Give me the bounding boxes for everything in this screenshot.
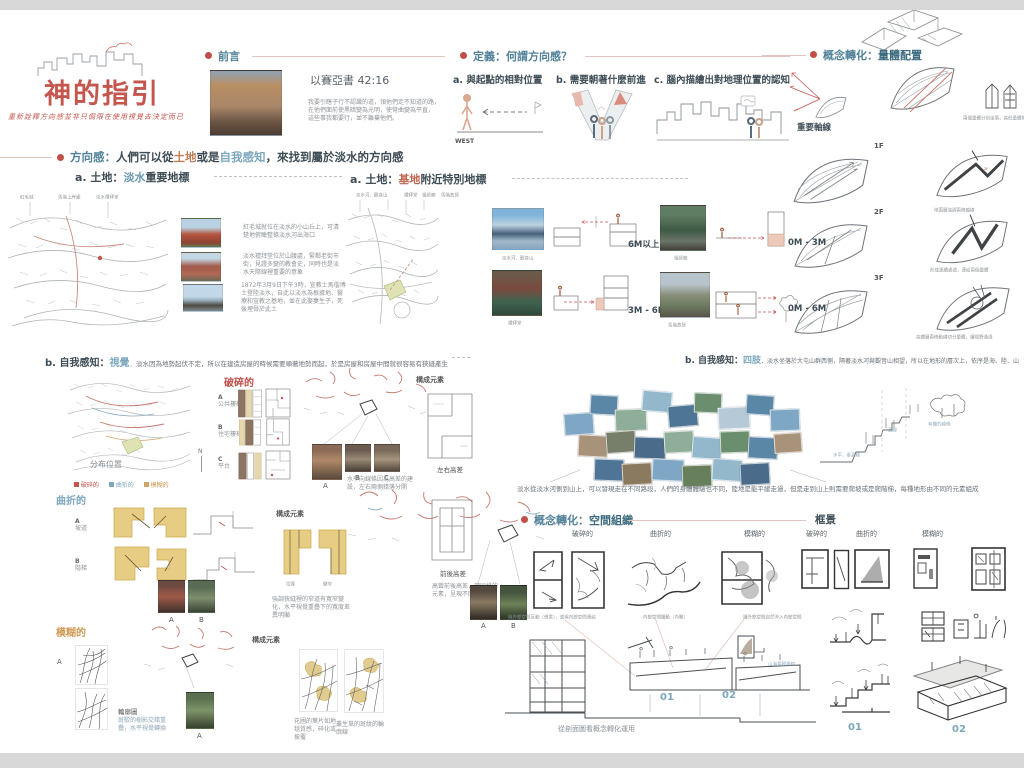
building-section-drawing bbox=[500, 628, 820, 724]
photo-guanyin-mountain bbox=[492, 208, 544, 250]
volume-bullet bbox=[810, 51, 817, 58]
distribution-caption: 分布位置 bbox=[90, 459, 122, 470]
framing-sketch-3 bbox=[853, 548, 891, 590]
distance-label-1: 6M以上 bbox=[628, 238, 659, 250]
blurred-element-1 bbox=[299, 649, 338, 712]
map-label-mackay-landing: 馬偕上岸處 bbox=[58, 193, 81, 200]
land-a-caption-3: 1872年3月9日下午3時，宣教士馬偕博士登陸淡水，自此以淡水為根據地、醫療和宣… bbox=[241, 282, 347, 314]
fragmented-elements-title: 構成元素 bbox=[416, 375, 444, 385]
axis-diagram bbox=[788, 65, 848, 120]
fragmented-title: 破碎的 bbox=[224, 374, 254, 389]
fragmented-plan-b bbox=[265, 418, 291, 446]
verse-line: 在他們面前使黑暗變為光明，使彎曲變為平直， bbox=[308, 107, 458, 115]
fragmented-plan-c bbox=[265, 450, 291, 480]
legend-blurred: 模糊的 bbox=[144, 482, 169, 489]
winding-element-caption-1: 拉寬 bbox=[286, 580, 295, 587]
space-title: 空間組織 bbox=[589, 514, 633, 527]
legend-fragmented: 破碎的 bbox=[74, 482, 99, 489]
photo-winding-b bbox=[188, 580, 215, 613]
winding-plan-a bbox=[191, 508, 255, 537]
framing-misc-sketch bbox=[952, 610, 1010, 648]
framing-title: 框景 bbox=[815, 512, 836, 527]
definition-illustration-b bbox=[558, 84, 646, 142]
space-cat-blurred: 模糊的 bbox=[744, 529, 765, 539]
blurred-note-1: 花圃的葉片如地毯質感，碎化或披覆 bbox=[294, 718, 338, 742]
map-tamsui bbox=[6, 200, 170, 334]
poster-subtitle: 重新詮釋方向感並非只侷限在使用視覺去決定而已 bbox=[8, 112, 184, 122]
section-marker-01: 01 bbox=[660, 692, 674, 703]
direction-rule bbox=[0, 157, 52, 158]
framing-sketch-2 bbox=[833, 549, 850, 590]
fragmented-strip-b bbox=[237, 419, 263, 446]
foreword-title: 前言 bbox=[218, 48, 240, 64]
direction-self-highlight: 自我感知 bbox=[220, 150, 266, 164]
blurred-pattern-caption: 輪廓圖 bbox=[118, 706, 138, 716]
map-label-mackay-house: 馬偕故居 bbox=[441, 191, 459, 198]
definition-illustration-a bbox=[455, 90, 545, 136]
winding-element-caption-2: 變窄 bbox=[323, 580, 332, 587]
photo-blurred-a bbox=[186, 692, 214, 729]
floor-label-2f: 2F bbox=[874, 208, 884, 216]
photo-fragmented-b bbox=[345, 444, 371, 472]
framing-cat-fragmented: 破碎的 bbox=[806, 529, 827, 539]
map-label-temple: 祖師廟 bbox=[422, 191, 436, 198]
framing-terrain-sketch-1 bbox=[828, 602, 888, 650]
space-cat-fragmented: 破碎的 bbox=[572, 529, 593, 539]
volume-rule bbox=[762, 55, 806, 56]
bottom-margin bbox=[0, 753, 1024, 768]
diagram-lr-caption: 左右高差 bbox=[437, 464, 463, 474]
poster-page: { "title_block": { "title": "神的指引", "sub… bbox=[0, 0, 1024, 768]
photo-winding-a bbox=[158, 580, 185, 613]
collage-leader-lines bbox=[540, 470, 830, 484]
fragmented-sketch-map bbox=[296, 362, 432, 446]
photo-fort-san-domingo bbox=[181, 218, 221, 248]
terrain-label-3: 有機的線條 bbox=[928, 420, 951, 427]
axis-caption: 重要軸線 bbox=[797, 121, 831, 133]
fragmented-strip-c bbox=[237, 452, 263, 480]
section-detail-caption: 山海景觀視線 bbox=[768, 660, 795, 667]
definition-rule bbox=[585, 56, 790, 57]
winding-plan-b bbox=[191, 546, 257, 583]
framing-sketch-1 bbox=[800, 548, 830, 590]
distance-diagram-2 bbox=[552, 274, 630, 318]
north-arrow-line bbox=[201, 456, 202, 472]
land-a-caption-2: 淡水禮拜堂位於山腰處，緊鄰老街市街，見證多變的教會史，同時也是淡水天際線裡重要的… bbox=[243, 253, 343, 277]
legend-winding: 曲折的 bbox=[109, 482, 134, 489]
terrain-label-2: 直線 bbox=[888, 426, 897, 433]
plan-fan-2f-right bbox=[933, 210, 1011, 270]
winding-note: 強調狹縫裡的窄道有寬窄變化，水平視覺重疊下的寬度差異明顯 bbox=[272, 596, 352, 620]
distance-diagram-4 bbox=[714, 288, 798, 326]
winding-photo2-tag-a: A bbox=[481, 622, 486, 630]
space-title-prefix: 概念轉化： bbox=[534, 514, 589, 527]
winding-diagram-b bbox=[113, 545, 188, 582]
direction-label: 方向感： bbox=[70, 150, 116, 164]
self-visual-dashes bbox=[452, 357, 470, 358]
photo-mackay-house bbox=[660, 272, 710, 318]
definition-title: 定義：何謂方向感？ bbox=[473, 48, 572, 64]
verse-text: 我要引瞎子行不認識的道，領他們走不知道的路， 在他們面前使黑暗變為光明，使彎曲變… bbox=[308, 99, 458, 123]
blurred-element-2 bbox=[344, 649, 384, 713]
blurred-pattern-1 bbox=[75, 645, 108, 685]
volume-towers-sketch bbox=[982, 80, 1018, 112]
floor-label-3f: 3F bbox=[874, 274, 884, 282]
land-b-heading: a. 土地：基地附近特別地標 bbox=[350, 171, 486, 187]
framing-cat-blurred: 模糊的 bbox=[922, 529, 943, 539]
fragmented-row-c-tag: C平台 bbox=[218, 456, 230, 471]
photo-tag-a: A bbox=[323, 482, 328, 490]
framing-sketch-4 bbox=[912, 547, 939, 590]
photo-fragmented-c bbox=[374, 444, 400, 472]
volume-title-prefix: 概念轉化： bbox=[823, 49, 878, 62]
plan-fan-1f-left bbox=[790, 148, 872, 210]
photo-caption-mackay-house: 馬偕故居 bbox=[668, 321, 686, 328]
map-label-chapel: 禮拜堂 bbox=[404, 191, 418, 198]
photo-chapel-street bbox=[492, 270, 542, 316]
floor-label-1f: 1F bbox=[874, 142, 884, 150]
distance-diagram-3 bbox=[714, 208, 786, 250]
space-bullet bbox=[521, 516, 528, 523]
fragmented-strip-a bbox=[237, 389, 263, 418]
section-caption: 從剖面圖看概念轉化運用 bbox=[558, 724, 635, 734]
map-label-fort: 紅毛城 bbox=[20, 193, 34, 200]
foreword-rule bbox=[252, 56, 445, 57]
north-arrow: N bbox=[198, 448, 203, 455]
limbs-caption: 淡水從淡水河側到山上，可以發現走在不同路段，人們的身體體驗也不同，陸地是能平緩走… bbox=[517, 483, 979, 493]
winding-diagram-a bbox=[112, 506, 188, 539]
photo-fragmented-a bbox=[312, 444, 342, 480]
photo-tamsui-church bbox=[181, 252, 221, 282]
blurred-photo-tag: A bbox=[197, 732, 202, 740]
photo-caption-chapel: 禮拜堂 bbox=[508, 319, 522, 326]
land-b-dashes bbox=[512, 178, 688, 179]
framing-marker-02: 02 bbox=[952, 724, 966, 735]
definition-illustration-c bbox=[655, 84, 791, 142]
direction-heading: 方向感：人們可以從土地或是自我感知，來找到屬於淡水的方向感 bbox=[70, 149, 404, 165]
land-a-caption-1: 紅毛城就位在淡水的小山丘上，可清楚地俯瞰整條淡水河出海口 bbox=[243, 224, 343, 240]
blurred-note-2: 叢生草的斑紋的輪廓線 bbox=[336, 721, 386, 737]
floor-caption-3f: 高樓層兩條動線切分量體，讓視野通透 bbox=[916, 333, 993, 340]
framing-terrain-sketch-2 bbox=[828, 660, 894, 718]
space-rule bbox=[628, 520, 806, 521]
self-limbs-heading: b. 自我感知：四肢．淡水坐落於大屯山群西側，隔著淡水河與觀音山相望，所以在地形… bbox=[685, 348, 1019, 367]
photo-caption-temple: 祖師廟 bbox=[674, 254, 688, 261]
definition-item-a: a. 與起點的相對位置 bbox=[453, 72, 542, 86]
map-distribution bbox=[66, 372, 194, 478]
photo-temple bbox=[660, 205, 706, 251]
land-a-heading: a. 土地：淡水重要地標 bbox=[75, 169, 189, 185]
section-marker-02: 02 bbox=[722, 690, 736, 701]
land-a-dashes bbox=[214, 176, 342, 177]
blurred-pattern-note: 斑駁的樹影交錯重疊，水平視覺轉換 bbox=[118, 717, 166, 733]
framing-sketch-5 bbox=[970, 546, 1007, 592]
map-label-church: 淡水禮拜堂 bbox=[96, 193, 119, 200]
west-label: WEST bbox=[455, 138, 474, 145]
winding-row-a-tag: A坡道 bbox=[75, 518, 87, 533]
definition-bullet bbox=[460, 52, 467, 59]
blurred-elements-title: 構成元素 bbox=[252, 635, 280, 645]
winding-elements-title: 構成元素 bbox=[276, 509, 304, 519]
volume-towers-caption: 兩個量體分別坐落，高低量體相互呼應 bbox=[963, 114, 1024, 121]
distribution-legend: 破碎的 曲折的 模糊的 bbox=[74, 480, 169, 489]
photo-mackay-statue bbox=[183, 284, 223, 312]
verse-line: 我要引瞎子行不認識的道，領他們走不知道的路， bbox=[308, 99, 458, 107]
blurred-title: 模糊的 bbox=[56, 624, 86, 639]
winding-element-1 bbox=[282, 528, 313, 576]
blurred-sketch-map bbox=[138, 620, 244, 690]
poster-title: 神的指引 bbox=[44, 72, 160, 111]
framing-marker-01: 01 bbox=[848, 722, 862, 733]
winding-title: 曲折的 bbox=[56, 492, 86, 507]
direction-bullet bbox=[57, 154, 64, 161]
framing-grid-sketch bbox=[920, 610, 946, 644]
direction-land-highlight: 土地 bbox=[174, 150, 197, 164]
top-margin bbox=[0, 0, 1024, 10]
verse-reference: 以賽亞書 42:16 bbox=[310, 72, 389, 88]
framing-cat-winding: 曲折的 bbox=[856, 529, 877, 539]
verse-line: 這些事我都要行，並不離棄他們。 bbox=[308, 115, 458, 123]
map-site bbox=[344, 198, 440, 332]
space-cat-winding: 曲折的 bbox=[650, 529, 671, 539]
svg-text:2F: 2F bbox=[984, 166, 989, 171]
photo-isaiah-painting bbox=[210, 70, 282, 136]
diagram-lr-height bbox=[424, 390, 478, 462]
blurred-pattern-2 bbox=[75, 688, 108, 730]
fragmented-plan-a bbox=[265, 388, 291, 418]
photo-winding-2a bbox=[470, 585, 497, 620]
floor-caption-2f: 形成連續通道，連結兩個量體 bbox=[930, 266, 989, 273]
distance-label-3: 0M - 3M bbox=[788, 238, 826, 248]
plan-fan-1f-right: 2F bbox=[933, 144, 1011, 204]
volume-fan-main bbox=[888, 58, 956, 118]
blurred-tag: A bbox=[57, 658, 62, 666]
photo-caption-river-mtn: 淡水河、觀音山 bbox=[502, 254, 534, 261]
winding-row-b-tag: B階梯 bbox=[75, 558, 87, 573]
map-label-river-mtn: 淡水河、觀音山 bbox=[356, 191, 388, 198]
distance-label-4: 0M - 6M bbox=[788, 304, 826, 314]
plan-fan-3f-right bbox=[933, 276, 1013, 338]
foreword-bullet bbox=[205, 52, 212, 59]
terrain-label-1: 水平、垂直線 bbox=[833, 451, 860, 458]
framing-box-sketch bbox=[908, 652, 1010, 722]
winding-sketch-map bbox=[340, 482, 558, 594]
section-detail-sketch bbox=[736, 634, 766, 660]
